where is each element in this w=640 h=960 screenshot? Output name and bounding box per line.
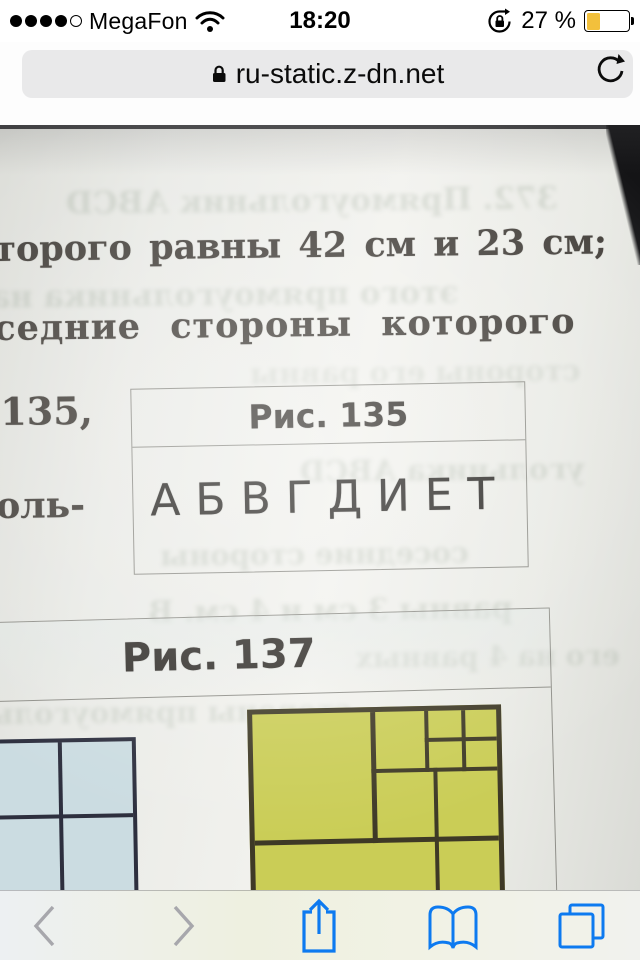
bleed-text: равны 3 см и 4 см. В bbox=[148, 591, 513, 630]
book-text-fragment-ol: оль- bbox=[0, 484, 85, 527]
figure-135-divider bbox=[132, 439, 525, 448]
photo-top-edge bbox=[0, 125, 640, 129]
book-text-line2: седние стороны которого bbox=[0, 301, 576, 349]
status-right: 27 % bbox=[486, 0, 630, 42]
bleed-text: угольника АВСD bbox=[300, 452, 585, 489]
bleed-text: его на 4 равных bbox=[356, 639, 620, 675]
yellow-square-line bbox=[425, 736, 497, 742]
bleed-text: стороны прямоуголь bbox=[0, 693, 352, 731]
figure-135-letters: АБВГДИЕТ bbox=[133, 468, 527, 527]
tabs-icon bbox=[557, 902, 607, 950]
share-icon bbox=[298, 897, 340, 955]
tabs-button[interactable] bbox=[554, 891, 610, 960]
bleed-text: этого прямоугольника на bbox=[0, 275, 458, 316]
yellow-square-line bbox=[433, 768, 439, 842]
lock-icon bbox=[211, 64, 227, 84]
yellow-square-line bbox=[424, 711, 429, 772]
battery-cap bbox=[631, 17, 635, 25]
chevron-right-icon bbox=[171, 904, 197, 948]
battery-icon bbox=[584, 10, 630, 32]
book-text-fragment-135: 135, bbox=[0, 388, 93, 434]
clock: 18:20 bbox=[289, 7, 350, 35]
bookmarks-button[interactable] bbox=[422, 891, 484, 960]
url-text: ru-static.z-dn.net bbox=[236, 58, 445, 90]
refresh-icon bbox=[593, 52, 626, 89]
bleed-text: 372. Прямоугольник АВСD bbox=[66, 180, 558, 221]
photo-corner-shadow bbox=[606, 125, 640, 265]
url-bar: ru-static.z-dn.net bbox=[0, 42, 640, 125]
yellow-square-line bbox=[461, 710, 466, 771]
blue-square-horizontal-line bbox=[0, 813, 133, 821]
figure-135-caption: Рис. 135 bbox=[131, 392, 525, 439]
chevron-left-icon bbox=[31, 904, 57, 948]
textbook-photo: 372. Прямоугольник АВСD этого прямоуголь… bbox=[0, 125, 640, 960]
iphone-safari-screen: MegaFon 18:20 27 % bbox=[0, 0, 640, 960]
forward-button[interactable] bbox=[162, 891, 206, 960]
bleed-text: стороны его равны bbox=[250, 353, 581, 390]
battery-percent: 27 % bbox=[521, 7, 576, 35]
safari-toolbar bbox=[0, 890, 640, 960]
share-button[interactable] bbox=[294, 891, 344, 960]
battery-fill bbox=[587, 13, 600, 30]
figure-137-header: Рис. 137 bbox=[0, 608, 551, 702]
book-icon bbox=[425, 901, 481, 951]
yellow-square-line bbox=[255, 835, 499, 845]
address-field[interactable]: ru-static.z-dn.net bbox=[22, 50, 633, 98]
bleed-text: соседние стороны bbox=[160, 535, 469, 572]
back-button[interactable] bbox=[22, 891, 66, 960]
figure-137-caption: Рис. 137 bbox=[0, 621, 640, 686]
refresh-button[interactable] bbox=[591, 50, 627, 90]
figure-135-box: Рис. 135 АБВГДИЕТ bbox=[130, 381, 528, 575]
book-text-line1: торого равны 42 см и 23 см; bbox=[0, 222, 607, 270]
yellow-square-line bbox=[371, 766, 497, 773]
status-bar: MegaFon 18:20 27 % bbox=[0, 0, 640, 42]
rotation-lock-icon bbox=[486, 8, 513, 35]
yellow-square-line bbox=[370, 712, 378, 843]
